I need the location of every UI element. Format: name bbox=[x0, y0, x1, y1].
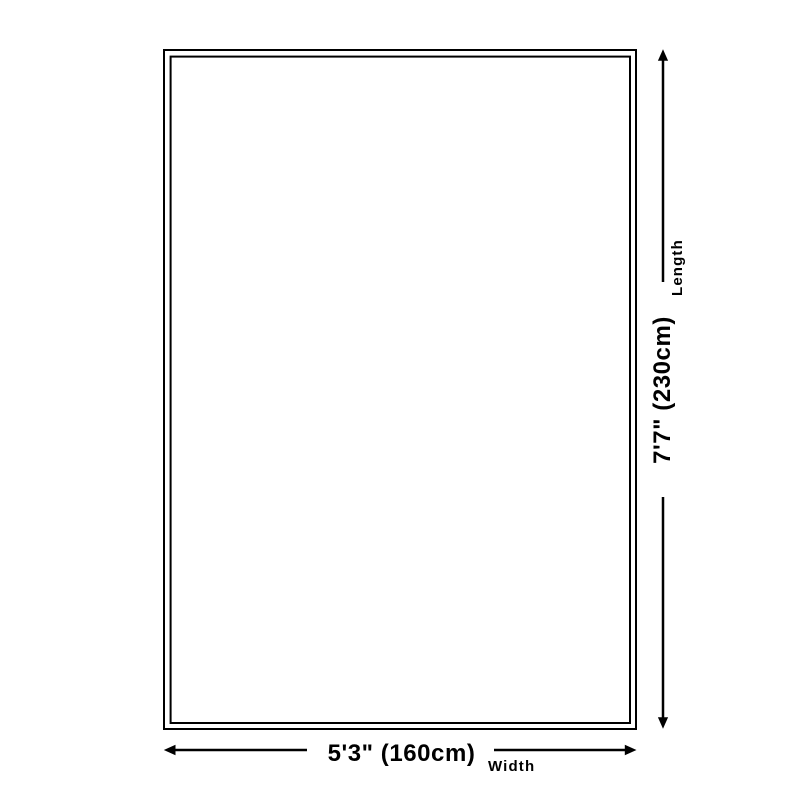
svg-text:5'3" (160cm): 5'3" (160cm) bbox=[328, 740, 476, 767]
svg-text:7'7" (230cm): 7'7" (230cm) bbox=[649, 316, 676, 464]
svg-text:Length: Length bbox=[669, 239, 686, 296]
svg-text:Width: Width bbox=[488, 758, 535, 775]
